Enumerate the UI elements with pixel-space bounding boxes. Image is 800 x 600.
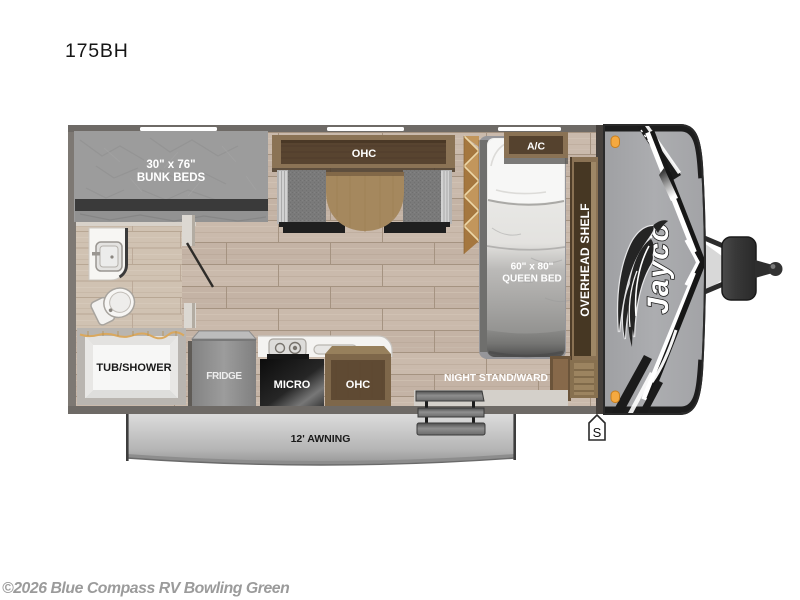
- svg-text:175BH: 175BH: [65, 40, 129, 62]
- svg-text:©2026 Blue Compass RV Bowling: ©2026 Blue Compass RV Bowling Green: [2, 580, 289, 597]
- svg-text:MICRO: MICRO: [274, 379, 311, 391]
- svg-text:60" x 80": 60" x 80": [511, 262, 554, 273]
- svg-text:FRIDGE: FRIDGE: [206, 371, 242, 382]
- svg-text:S: S: [593, 425, 602, 440]
- svg-text:30" x 76": 30" x 76": [146, 159, 195, 171]
- svg-text:TUB/SHOWER: TUB/SHOWER: [96, 362, 171, 374]
- svg-text:BUNK BEDS: BUNK BEDS: [137, 172, 206, 184]
- svg-text:OVERHEAD SHELF: OVERHEAD SHELF: [578, 203, 592, 316]
- svg-text:QUEEN BED: QUEEN BED: [502, 274, 561, 285]
- svg-text:OHC: OHC: [346, 379, 371, 391]
- svg-text:NIGHT STAND/WARD: NIGHT STAND/WARD: [444, 373, 548, 384]
- svg-text:OHC: OHC: [352, 148, 377, 160]
- svg-text:12' AWNING: 12' AWNING: [291, 433, 351, 445]
- svg-text:A/C: A/C: [527, 141, 546, 153]
